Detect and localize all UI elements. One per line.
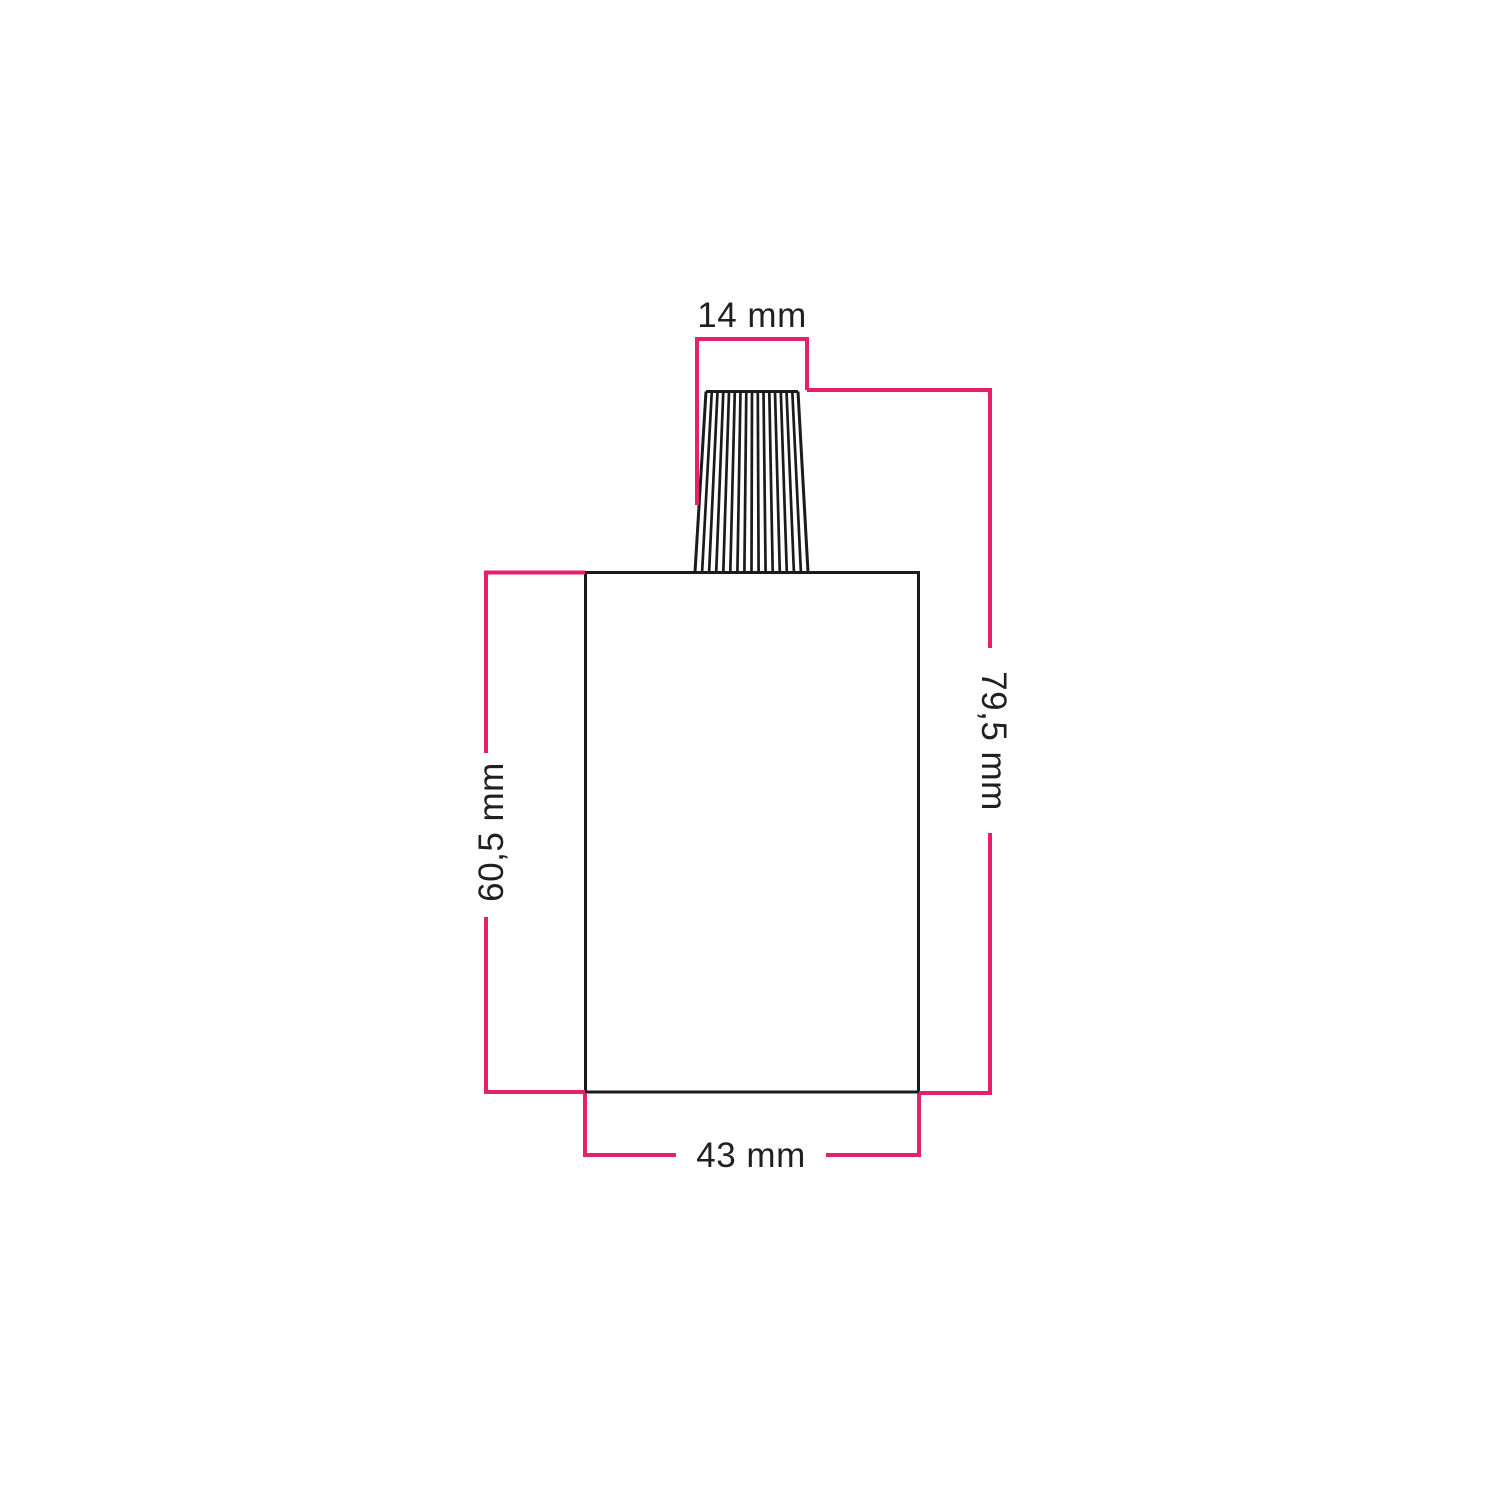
cable-gland-ribs	[702, 392, 801, 573]
dimension-line-total-height-lower	[919, 833, 990, 1093]
gland-rib	[744, 392, 746, 573]
gland-rib	[764, 392, 766, 573]
label-body-height: 60,5 mm	[472, 762, 511, 902]
label-gland-width: 14 mm	[697, 296, 806, 335]
gland-rib	[737, 392, 740, 573]
gland-rib	[752, 392, 753, 573]
gland-rib	[758, 392, 759, 573]
dimension-line-body-width-right	[826, 1093, 919, 1155]
label-body-width: 43 mm	[696, 1136, 805, 1175]
gland-rib	[769, 392, 772, 573]
lamp-holder-dimension-drawing: 14 mm 79,5 mm 60,5 mm 43 mm	[0, 0, 1500, 1500]
gland-rib	[775, 392, 780, 573]
product-outline	[586, 392, 919, 1093]
cable-gland	[695, 392, 808, 573]
gland-rib	[730, 392, 735, 573]
dimension-line-body-height-lower	[486, 917, 585, 1092]
gland-rib	[781, 392, 787, 573]
dimension-line-body-width-left	[585, 1093, 676, 1155]
dimension-line-body-height-upper	[486, 573, 585, 754]
gland-rib	[723, 392, 729, 573]
socket-body-outline	[586, 573, 919, 1093]
dimension-drawing-canvas: 14 mm 79,5 mm 60,5 mm 43 mm	[0, 0, 1500, 1500]
label-total-height: 79,5 mm	[974, 671, 1013, 811]
